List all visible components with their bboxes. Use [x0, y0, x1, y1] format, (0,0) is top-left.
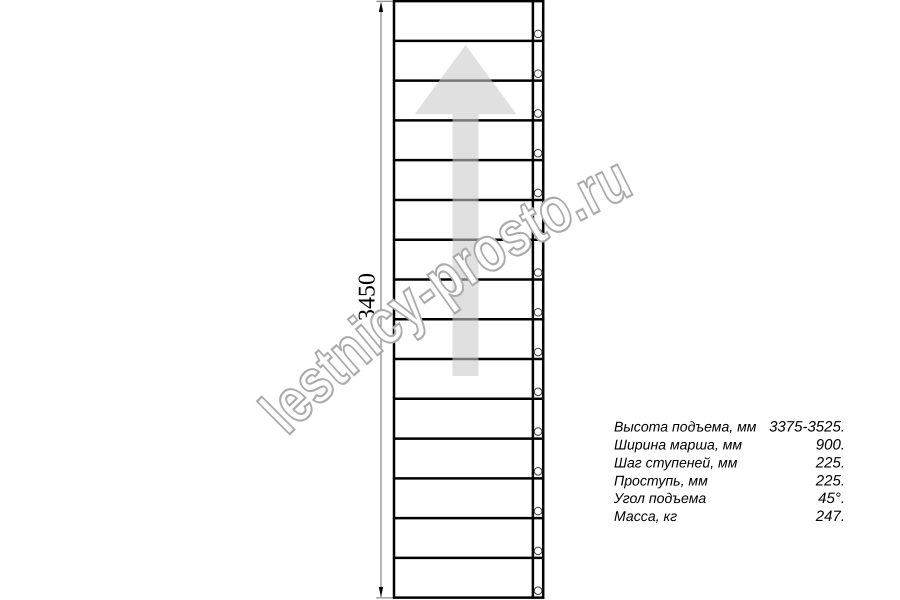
svg-text:Шаг ступеней, мм: Шаг ступеней, мм — [614, 454, 738, 470]
svg-text:247.: 247. — [815, 508, 845, 525]
svg-text:Проступь, мм: Проступь, мм — [614, 472, 708, 488]
svg-text:Масса, кг: Масса, кг — [614, 508, 677, 524]
svg-text:Ширина марша, мм: Ширина марша, мм — [614, 437, 742, 453]
svg-text:Угол подъема: Угол подъема — [613, 490, 706, 506]
svg-text:225.: 225. — [815, 472, 845, 489]
svg-text:900.: 900. — [816, 437, 845, 454]
svg-text:3375-3525.: 3375-3525. — [769, 419, 845, 436]
svg-text:Высота подъема, мм: Высота подъема, мм — [614, 419, 757, 435]
svg-text:225.: 225. — [815, 454, 845, 471]
svg-text:45°.: 45°. — [818, 490, 845, 507]
